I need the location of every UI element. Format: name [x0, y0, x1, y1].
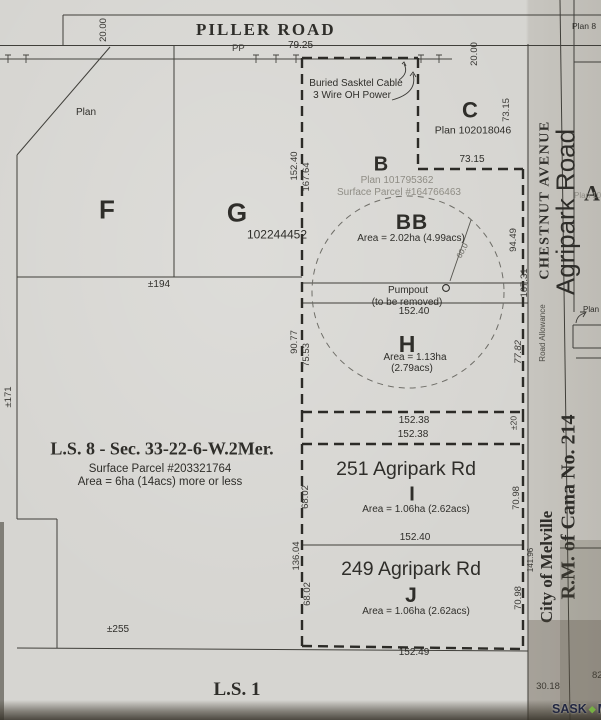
road-width-right-dim: 20.00	[470, 42, 480, 66]
parcel-i-address: 251 Agripark Rd	[336, 459, 476, 479]
g-south-dim: ±194	[148, 280, 170, 291]
scan-edge-left	[0, 522, 4, 720]
j-west-dim: 68.02	[303, 582, 313, 606]
survey-plan-scan: PILLER ROAD 20.00 20.00 PP 79.25 Buried …	[0, 0, 601, 720]
parcel-bb-letter: BB	[396, 212, 428, 234]
saskmls-watermark: SASK◆MLS®	[552, 702, 601, 716]
pumpout-east-dim: 167.31	[520, 268, 530, 297]
parcel-b-letter: B	[374, 155, 388, 176]
cable-note-line1: Buried Sasktel Cable	[309, 79, 402, 90]
f-plan-note: Plan	[76, 108, 96, 119]
pumpout-label: Pumpout	[388, 286, 428, 297]
cable-note-line2: 3 Wire OH Power	[313, 91, 391, 102]
b-west-outer-dim: 152.40	[290, 151, 300, 180]
c-plan-number: Plan 102018046	[435, 125, 512, 136]
j-east-outer-dim: 141.96	[527, 548, 535, 572]
j-south-dim: 152.49	[399, 648, 430, 659]
h-area-line2: (2.79acs)	[391, 364, 433, 375]
h-west-outer-dim: 90.77	[290, 330, 300, 354]
adjacent-plan-label: Plan 10	[574, 192, 601, 200]
h-area-line1: Area = 1.13ha	[383, 353, 446, 364]
parcel-i-letter: I	[409, 485, 415, 506]
h-east-dim: 77.82	[514, 340, 524, 364]
i-east-dim: 70.98	[512, 486, 522, 510]
parcel-j-address: 249 Agripark Rd	[341, 559, 481, 579]
pp-label: PP	[232, 44, 245, 54]
road-allowance-label: Road Allowance	[539, 304, 547, 361]
g-plan-number: 102244452	[247, 229, 307, 242]
h-west-inner-dim: 75.53	[302, 343, 312, 367]
saskmls-diamond-icon: ◆	[589, 704, 596, 715]
bb-area-label: Area = 2.02ha (4.99acs)	[357, 234, 465, 245]
saskmls-mls-text: MLS	[598, 702, 601, 716]
j-area-label: Area = 1.06ha (2.62acs)	[362, 607, 470, 618]
pumpout-south-dim: 152.40	[399, 307, 430, 318]
i-west-dim: 68.02	[301, 485, 311, 509]
parcel-f-letter: F	[99, 196, 115, 223]
allowance-north-dim: 152.38	[399, 416, 430, 427]
pp-distance-dim: 79.25	[288, 41, 313, 52]
parcel-c-letter: C	[462, 98, 478, 121]
plan8-label: Plan 8	[572, 22, 596, 31]
i-south-dim: 152.40	[400, 533, 431, 544]
saskmls-sask-text: SASK	[552, 702, 587, 716]
ls8-title: L.S. 8 - Sec. 33-22-6-W.2Mer.	[50, 440, 273, 459]
ls8-area: Area = 6ha (14acs) more or less	[78, 476, 243, 488]
bb-east-dim: 94.49	[509, 228, 519, 252]
j-east-dim: 70.98	[514, 586, 524, 610]
c-west-dim: 73.15	[502, 98, 512, 122]
scan-edge-bottom	[0, 700, 601, 720]
b-plan-number: Plan 101795362	[361, 176, 434, 187]
road-width-left-dim: 20.00	[99, 18, 109, 42]
parcel-g-letter: G	[227, 199, 247, 226]
i-area-label: Area = 1.06ha (2.62acs)	[362, 505, 470, 516]
ls1-title: L.S. 1	[214, 680, 261, 700]
ls8-south-dim: ±255	[107, 625, 129, 636]
city-of-melville-label: City of Melville	[538, 511, 556, 623]
plan-callout-label: Plan	[583, 306, 599, 314]
pumpout-symbol-icon	[443, 285, 450, 292]
agripark-road-label: Agripark Road	[552, 129, 579, 295]
c-south-dim: 73.15	[459, 155, 484, 166]
parcel-j-letter: J	[405, 585, 417, 607]
ls8-west-dim: ±171	[4, 386, 14, 407]
ls8-surface-parcel: Surface Parcel #203321764	[89, 463, 232, 475]
b-surface-parcel: Surface Parcel #164766463	[337, 188, 461, 199]
b-west-inner-dim: 167.64	[302, 162, 312, 191]
road-name-label: PILLER ROAD	[196, 21, 336, 39]
allowance-south-dim: 152.38	[398, 430, 429, 441]
allowance-east-dim: ±20	[510, 416, 519, 430]
j-west-outer-dim: 136.04	[292, 541, 302, 570]
